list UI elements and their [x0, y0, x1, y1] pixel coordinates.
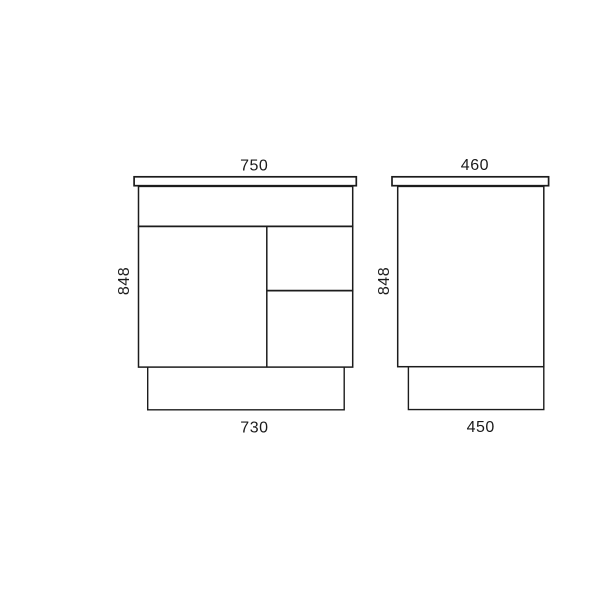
- svg-text:848: 848: [116, 267, 133, 295]
- svg-text:730: 730: [240, 420, 268, 437]
- svg-text:750: 750: [240, 157, 268, 174]
- svg-text:460: 460: [461, 157, 489, 174]
- svg-text:450: 450: [467, 419, 495, 436]
- svg-text:848: 848: [376, 267, 393, 295]
